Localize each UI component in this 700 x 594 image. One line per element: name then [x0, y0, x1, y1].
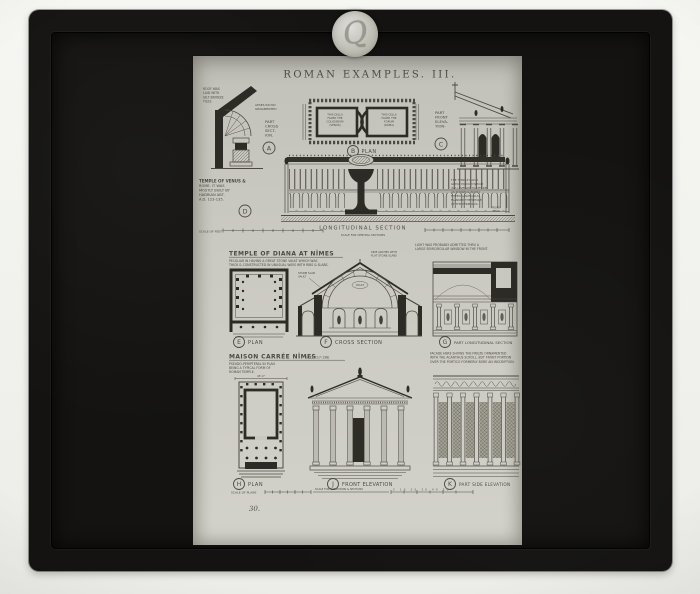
diana-longitudinal-section-drawing [433, 262, 517, 336]
label-letter: F [324, 339, 328, 346]
lantern-slide-photo: ROMAN EXAMPLES. III. ROOF WAS LAID WITH … [0, 0, 700, 594]
label-text: PART SIDE ELEVATION [459, 482, 510, 487]
label-text: PLAN [248, 482, 263, 488]
label-letter: C [439, 140, 444, 148]
venus-heading-block: TEMPLE OF VENUS & ROME. IT WAS MOSTLY BU… [199, 179, 246, 202]
label-line: ION. [265, 133, 273, 138]
slide-number: 30. [249, 505, 260, 513]
label-letter: H [237, 481, 242, 488]
annotation: (VENUS) [329, 123, 340, 127]
heading-line: A.D. 123-135. [199, 198, 224, 202]
label-plan-h: H PLAN [234, 479, 264, 490]
annotation: THICK & CONSTRUCTED IN UNUSUAL WAYS WITH… [228, 263, 329, 267]
label-text: PLAN [248, 340, 263, 346]
section-label: LONGITUDINAL SECTION [319, 226, 407, 232]
scale-label: SCALE OF FEET [199, 230, 222, 234]
sticker-handwritten-mark: Q [341, 17, 370, 50]
annotation: ROMAN TEMPLE. [229, 370, 255, 374]
venus-plan-drawing: THIS CELLA FACED THE COLOSSEUM (VENUS) T… [303, 101, 419, 143]
row1-scale-bars: SCALE OF FEET LONGITUDINAL SECTION SCALE… [199, 226, 509, 238]
annotation: STAIR [492, 209, 500, 213]
scale-label: SCALE FOR ELEVATIONS & SECTIONS [315, 487, 363, 491]
annotation: ORNAMENTED [255, 107, 277, 111]
plate-title: ROMAN EXAMPLES. III. [283, 70, 456, 81]
photographic-plate: ROMAN EXAMPLES. III. ROOF WAS LAID WITH … [193, 56, 522, 545]
annotation: OVER THE PORTICO FORMERLY BORE AN INSCRI… [430, 360, 515, 364]
maison-front-elevation-drawing [308, 368, 412, 479]
annotation: TILES [202, 100, 211, 104]
heading-line: HADRIAN ABT. [199, 193, 225, 197]
section-heading: TEMPLE OF DIANA AT NÎMES [229, 250, 334, 258]
heading-line: TEMPLE OF VENUS & [199, 179, 246, 184]
label-longitudinal-section-g: G PART LONGITUDINAL SECTION [440, 337, 513, 348]
annotation: FLAT STONE SLABS [371, 254, 397, 258]
heading-date: (A.D. 117-138) [306, 356, 329, 360]
scale-numbers: 5 10 20 30 40 50 [393, 488, 450, 492]
heading-line: MOSTLY BUILT BY [199, 189, 231, 193]
annotation: LARGE SEMICIRCULAR WINDOW IN THE FRONT. [415, 247, 488, 251]
maison-plan-drawing: 45'-0" [235, 374, 287, 477]
annotation: VAULT [356, 283, 365, 287]
row3-scale-bars: SCALE OF PLANS SCALE FOR ELEVATIONS & SE… [231, 487, 473, 495]
label-letter: B [351, 148, 355, 155]
maison-side-elevation-drawing [433, 376, 520, 477]
dimension: 45'-0" [257, 374, 265, 378]
label-letter: A [267, 144, 272, 152]
scale-label: SCALE FOR CENTRAL SECTIONS [341, 233, 386, 237]
annotation: OF THE PERIBOLUS. [451, 202, 479, 206]
plate-drawing: ROMAN EXAMPLES. III. ROOF WAS LAID WITH … [193, 56, 522, 545]
label-text: PLAN [362, 149, 377, 155]
diana-plan-drawing [231, 270, 287, 337]
section-heading: MAISON CARRÉE NÎMES [229, 353, 316, 361]
label-text: CROSS SECTION [335, 340, 382, 346]
label-letter: D [242, 207, 247, 215]
label-longitudinal-section-d: D [239, 205, 251, 217]
heading-line: ROME. IT WAS [199, 184, 225, 188]
label-cross-section-f: F CROSS SECTION [321, 337, 383, 348]
label-letter: K [448, 481, 453, 488]
slide-sticker: Q [332, 11, 378, 57]
scale-label: SCALE OF PLANS [231, 491, 256, 495]
label-plan-e: E PLAN [234, 337, 264, 348]
label-letter: G [443, 339, 448, 346]
label-cross-section-a: PART CROSS SECT- ION. A [263, 119, 279, 154]
maison-heading-block: MAISON CARRÉE NÎMES (A.D. 117-138) PSEUD… [229, 352, 515, 374]
label-line: TION- [434, 124, 446, 129]
label-side-elevation-k: K PART SIDE ELEVATION [445, 479, 511, 490]
label-letter: E [237, 339, 241, 346]
annotation: (ROMA) [384, 123, 394, 127]
label-text: PART LONGITUDINAL SECTION [454, 340, 513, 345]
annotation: VAULT [298, 275, 307, 279]
label-front-elevation-c: PART FRONT ELEVA- TION- C [434, 110, 449, 150]
